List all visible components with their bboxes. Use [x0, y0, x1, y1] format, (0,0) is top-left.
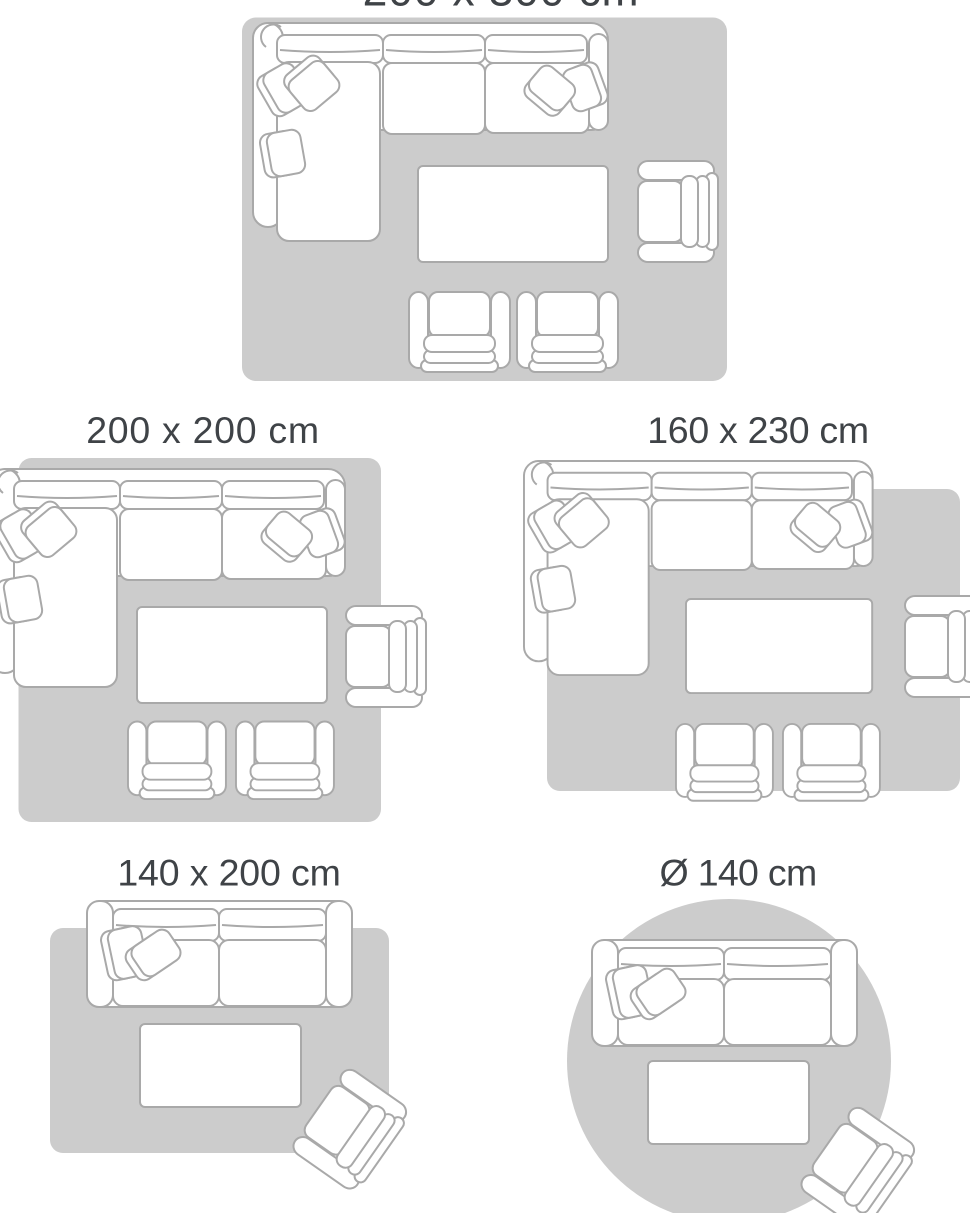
- svg-text:Ø 140 cm: Ø 140 cm: [660, 852, 817, 894]
- svg-text:140 x 200 cm: 140 x 200 cm: [117, 852, 340, 894]
- svg-text:200 x 200 cm: 200 x 200 cm: [86, 409, 320, 451]
- svg-text:200 x 300 cm: 200 x 300 cm: [363, 0, 640, 16]
- svg-text:160 x 230 cm: 160 x 230 cm: [647, 409, 869, 451]
